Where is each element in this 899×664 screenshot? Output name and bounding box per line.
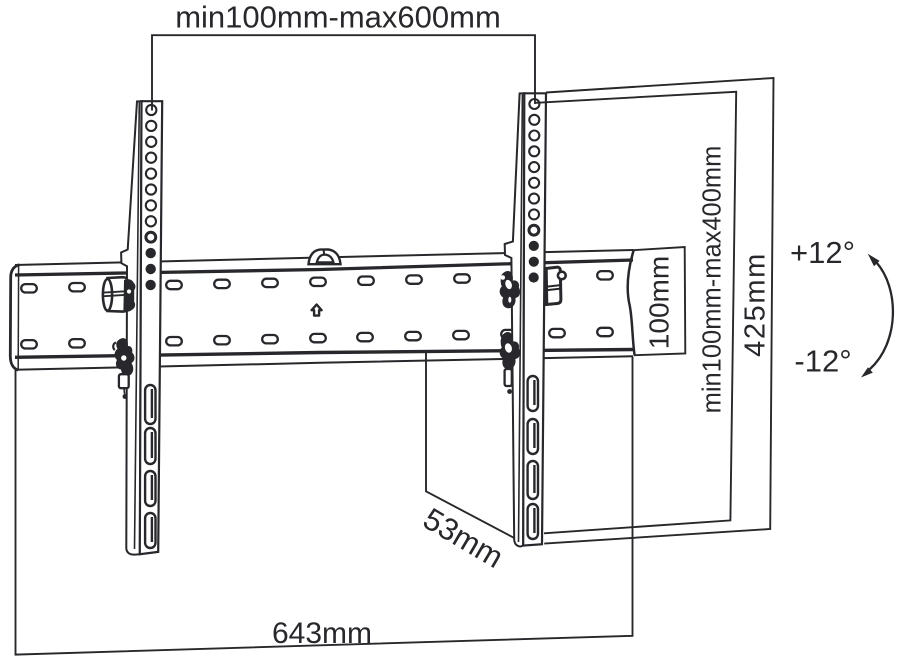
svg-text:+12°: +12° bbox=[790, 235, 855, 270]
svg-text:min100mm-max400mm: min100mm-max400mm bbox=[699, 146, 727, 414]
svg-text:min100mm-max600mm: min100mm-max600mm bbox=[175, 0, 501, 35]
svg-text:-12°: -12° bbox=[794, 344, 851, 379]
svg-text:100mm: 100mm bbox=[644, 256, 675, 349]
svg-text:643mm: 643mm bbox=[272, 617, 372, 650]
svg-text:425mm: 425mm bbox=[740, 252, 772, 357]
